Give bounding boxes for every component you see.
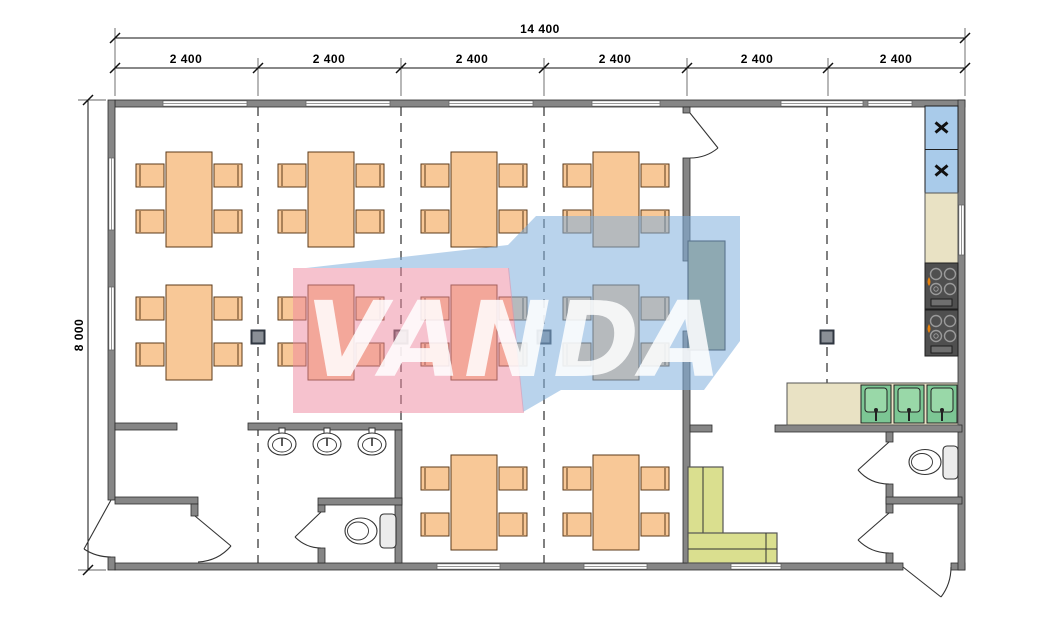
dimension-label-module-4: 2 400: [599, 52, 632, 66]
floor-plan-drawing: 14 400 2 400 2 400 2 400 2 400 2 400 2 4…: [0, 0, 1047, 629]
door-swing-wc-right-upper: [858, 442, 889, 484]
dimension-label-module-5: 2 400: [741, 52, 774, 66]
door-swing-kitchen: [690, 113, 718, 158]
washbasin: [268, 428, 296, 455]
dimension-label-module-2: 2 400: [313, 52, 346, 66]
dining-table-set: [136, 285, 242, 380]
washbasin: [313, 428, 341, 455]
dimension-label-total-height: 8 000: [72, 319, 86, 352]
dimension-label-total-width: 14 400: [520, 22, 560, 36]
gas-stove: [925, 263, 958, 309]
dimension-label-module-6: 2 400: [880, 52, 913, 66]
dining-table-set: [421, 455, 527, 550]
watermark-text: VANDA: [306, 279, 724, 401]
fridge-units: [925, 106, 958, 193]
floor-plan-canvas: 14 400 2 400 2 400 2 400 2 400 2 400 2 4…: [0, 0, 1047, 629]
door-swing-exit-bottom-right: [903, 567, 951, 597]
dining-table-set: [136, 152, 242, 247]
dining-table-set: [421, 152, 527, 247]
dining-table-set: [563, 455, 669, 550]
door-swing-wc-middle: [295, 512, 321, 548]
gas-stove: [925, 310, 958, 356]
dining-table-set: [278, 152, 384, 247]
door-swing-vestibule: [195, 516, 231, 562]
kitchen-counter: [925, 193, 958, 263]
corner-sofa: [688, 467, 777, 563]
washbasin: [358, 428, 386, 455]
kitchen-sink: [894, 385, 924, 423]
toilet: [345, 514, 396, 548]
dimension-label-module-1: 2 400: [170, 52, 203, 66]
dimension-label-module-3: 2 400: [456, 52, 489, 66]
kitchen-sink: [861, 385, 891, 423]
vanda-watermark: VANDA: [293, 216, 740, 413]
toilet: [909, 446, 958, 479]
door-swing-wc-right-lower: [858, 513, 889, 553]
kitchen-sink: [927, 385, 957, 423]
